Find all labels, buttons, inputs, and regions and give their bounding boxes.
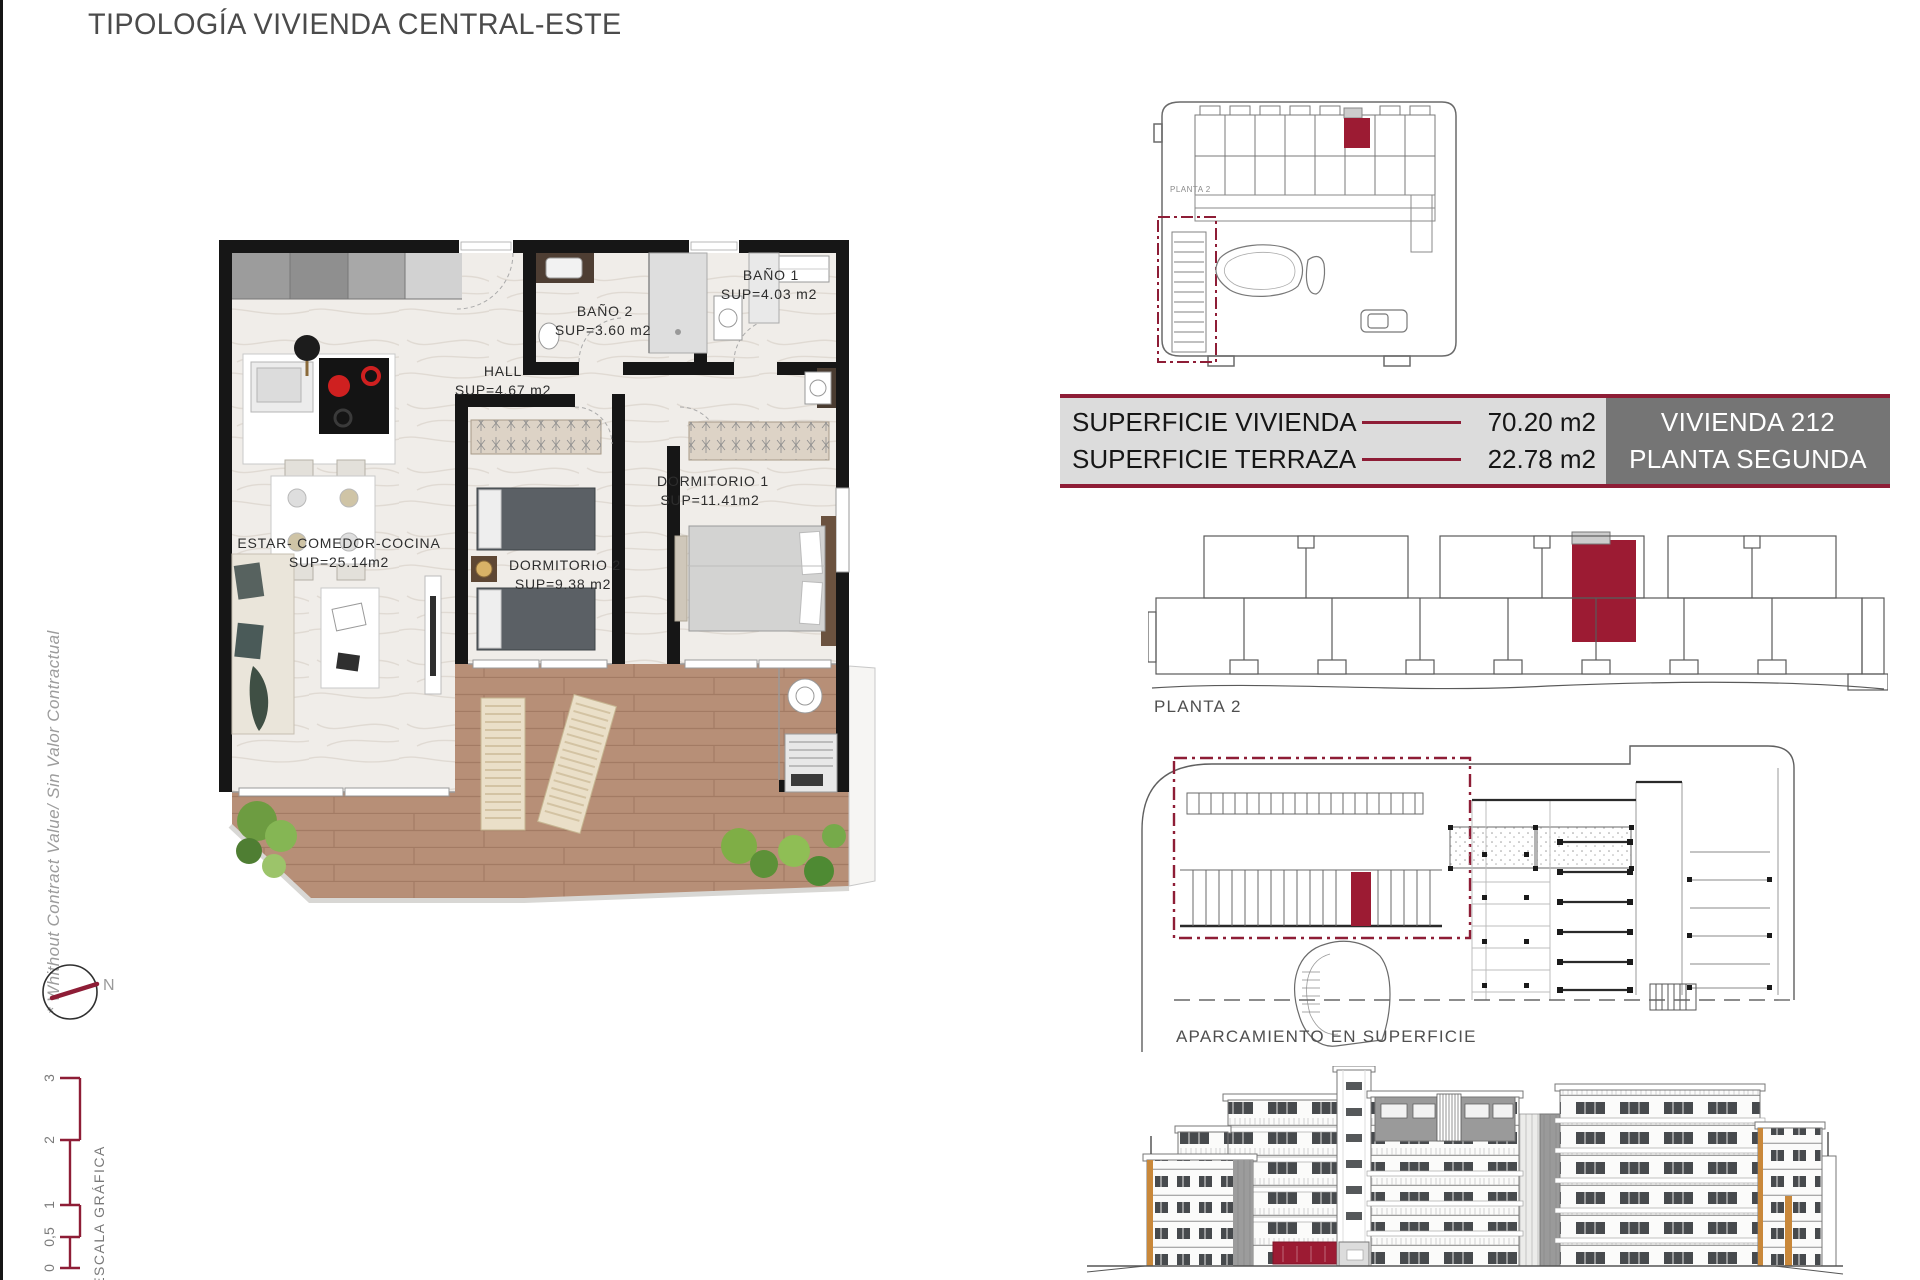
site-plan: PLANTA 2 [1150,96,1465,376]
summary-label: SUPERFICIE VIVIENDA [1072,407,1362,438]
room-area-dorm2: SUP=9.38 m2 [515,576,611,592]
scale-tick-05: 0,5 [41,1227,57,1247]
coffee-table [321,588,379,688]
room-area-hall: SUP=4.67 m2 [455,382,551,398]
room-label-hall: HALL [484,363,522,379]
scale-title: ESCALA GRÁFICA [91,1145,107,1280]
parking-stalls-main [1180,870,1442,926]
scale-tick-1: 1 [41,1201,57,1209]
room-area-bano1: SUP=4.03 m2 [721,286,817,302]
parking-zone-dashed [1174,758,1470,938]
summary-connector-line [1362,458,1461,461]
site-units-row [1195,106,1435,195]
pan-icon [294,335,320,361]
ground-line [1087,1266,1843,1274]
compass-needle-icon [52,984,97,998]
page-edge-line [0,0,3,1280]
room-label-estar: ESTAR- COMEDOR-COCINA [237,535,440,551]
highlight-unit-site [1344,118,1370,148]
parking-structure [1472,782,1682,990]
parking-lanes [1472,768,1778,1000]
site-pool [1216,245,1325,297]
elev-middle-section [1367,1091,1523,1266]
elev-left-tower [1143,1136,1257,1266]
scale-bar: 0 0,5 1 2 3 ESCALA GRÁFICA [24,1058,124,1280]
summary-connector-line [1362,421,1461,424]
highlight-parking-stall [1351,872,1371,926]
summary-row-terraza: SUPERFICIE TERRAZA 22.78 m2 [1072,444,1596,475]
summary-table: SUPERFICIE VIVIENDA 70.20 m2 SUPERFICIE … [1060,394,1890,488]
bedroom2-furniture [471,420,601,650]
parking-stalls-top [1187,793,1423,814]
keyplan-outline [1148,536,1888,690]
summary-value: 22.78 m2 [1475,444,1596,475]
room-area-estar: SUP=25.14m2 [289,554,389,570]
compass-north-label: N [103,977,115,994]
outdoor-shower [788,679,822,713]
plan-sheet: TIPOLOGÍA VIVIENDA CENTRAL-ESTE * Whitho… [0,0,1920,1280]
site-car-icon [1361,310,1407,332]
elev-right-tower [1755,1122,1836,1266]
compass: N [40,956,135,1028]
scale-tick-2: 2 [41,1136,57,1144]
parking-plan: APARCAMIENTO EN SUPERFICIE [1130,722,1920,1052]
key-plan-label: PLANTA 2 [1154,697,1242,716]
unit-number: VIVIENDA 212 [1661,407,1835,438]
unit-zone-dashed [1158,217,1216,362]
room-area-bano2: SUP=3.60 m2 [555,322,651,338]
summary-label: SUPERFICIE TERRAZA [1072,444,1362,475]
highlight-unit-terrace-keyplan [1572,532,1610,544]
unit-badge: VIVIENDA 212 PLANTA SEGUNDA [1606,398,1890,484]
summary-rows: SUPERFICIE VIVIENDA 70.20 m2 SUPERFICIE … [1060,398,1606,484]
site-plan-label: PLANTA 2 [1170,185,1211,194]
highlight-unit-keyplan [1572,540,1636,642]
scale-tick-3: 3 [41,1074,57,1082]
room-label-dorm1: DORMITORIO 1 [657,473,769,489]
parking-label: APARCAMIENTO EN SUPERFICIE [1176,1027,1477,1046]
bedroom1-window [836,488,849,572]
unit-floor: PLANTA SEGUNDA [1629,444,1867,475]
elev-right-section [1540,1084,1765,1266]
parking-planters [1450,827,1631,868]
lounge-chair [481,698,525,830]
scale-tick-0: 0 [41,1264,57,1272]
neighbor-terrace-outline [849,666,875,886]
room-area-dorm1: SUP=11.41m2 [660,492,759,508]
key-plan: PLANTA 2 [1148,526,1888,718]
room-label-bano2: BAÑO 2 [577,303,633,319]
floor-plan: ESTAR- COMEDOR-COCINA SUP=25.14m2 HALL S… [219,236,879,948]
summary-row-vivienda: SUPERFICIE VIVIENDA 70.20 m2 [1072,407,1596,438]
highlight-unit-terrace [1344,108,1362,118]
summary-value: 70.20 m2 [1475,407,1596,438]
room-label-bano1: BAÑO 1 [743,267,799,283]
page-title: TIPOLOGÍA VIVIENDA CENTRAL-ESTE [88,8,622,42]
scale-bar-line [60,1078,80,1268]
building-elevation [1085,1066,1845,1280]
room-label-dorm2: DORMITORIO 2 [509,557,621,573]
site-stairs [1172,232,1206,352]
